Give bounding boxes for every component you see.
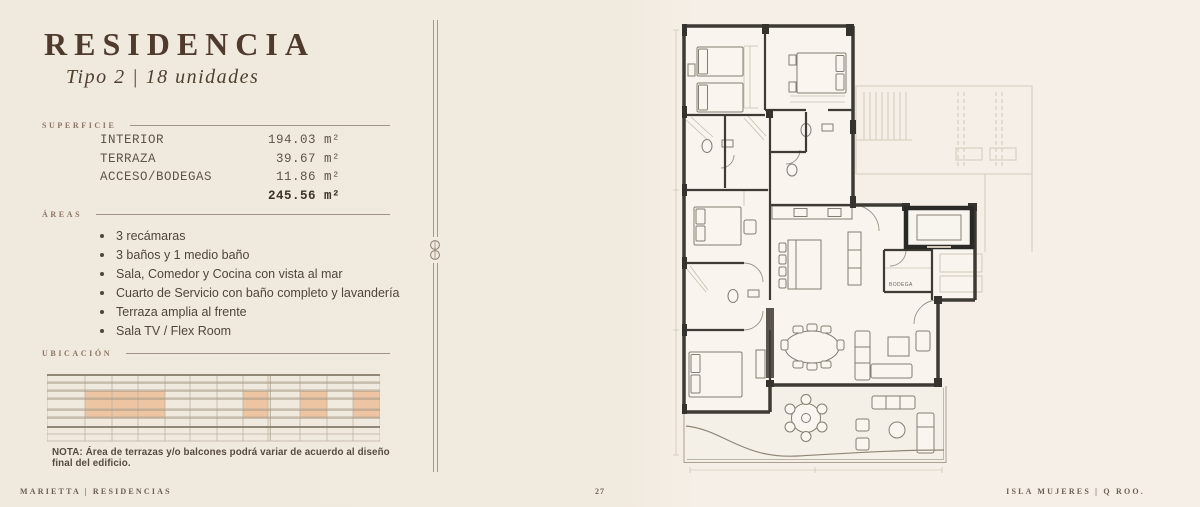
nota-text: NOTA: Área de terrazas y/o balcones podr… [52, 447, 392, 469]
areas-rule [96, 214, 390, 215]
superficie-label: SUPERFICIE [42, 121, 116, 130]
bodega-label: BODEGA [889, 282, 913, 288]
ubicacion-label: UBICACIÓN [42, 349, 112, 358]
section-ubicacion-header: UBICACIÓN [42, 349, 390, 358]
section-areas-header: ÁREAS [42, 210, 390, 219]
ubicacion-rule [126, 353, 390, 354]
row-name: ACCESO/BODEGAS [100, 170, 212, 184]
page-subtitle: Tipo 2 | 18 unidades [66, 66, 259, 89]
floor-plan: BODEGA [650, 10, 1080, 480]
superficie-total: 245.56 m² [100, 189, 340, 203]
bullet-icon [100, 329, 104, 333]
areas-label: ÁREAS [42, 210, 82, 219]
list-item-label: Sala TV / Flex Room [116, 324, 231, 338]
list-item-label: 3 baños y 1 medio baño [116, 248, 249, 262]
page-title: RESIDENCIA [44, 26, 315, 63]
ubicacion-grid [47, 372, 380, 447]
list-item-label: 3 recámaras [116, 229, 185, 243]
list-item: Cuarto de Servicio con baño completo y l… [100, 287, 420, 300]
list-item: 3 baños y 1 medio baño [100, 249, 420, 262]
bullet-icon [100, 272, 104, 276]
elevator-core [906, 208, 972, 247]
row-name: INTERIOR [100, 133, 164, 147]
row-value: 11.86 m² [276, 170, 340, 184]
brochure-page: RESIDENCIA Tipo 2 | 18 unidades SUPERFIC… [0, 0, 1200, 507]
list-item-label: Terraza amplia al frente [116, 305, 247, 319]
bullet-icon [100, 234, 104, 238]
superficie-rule [130, 125, 390, 126]
footer-left: MARIETTA | RESIDENCIAS [20, 487, 172, 496]
list-item-label: Cuarto de Servicio con baño completo y l… [116, 286, 400, 300]
footer-right: ISLA MUJERES | Q ROO. [1006, 487, 1145, 496]
divider-ornament-icon [426, 237, 444, 263]
bullet-icon [100, 291, 104, 295]
list-item: Sala TV / Flex Room [100, 325, 420, 338]
list-item: Sala, Comedor y Cocina con vista al mar [100, 268, 420, 281]
table-row: INTERIOR 194.03 m² [100, 133, 340, 147]
table-row: ACCESO/BODEGAS 11.86 m² [100, 170, 340, 184]
row-name: TERRAZA [100, 152, 156, 166]
bullet-icon [100, 253, 104, 257]
areas-list: 3 recámaras 3 baños y 1 medio baño Sala,… [100, 230, 420, 344]
table-row: TERRAZA 39.67 m² [100, 152, 340, 166]
list-item: 3 recámaras [100, 230, 420, 243]
bullet-icon [100, 310, 104, 314]
list-item-label: Sala, Comedor y Cocina con vista al mar [116, 267, 342, 281]
row-value: 194.03 m² [268, 133, 340, 147]
row-value: 39.67 m² [276, 152, 340, 166]
superficie-table: INTERIOR 194.03 m² TERRAZA 39.67 m² ACCE… [100, 133, 340, 203]
list-item: Terraza amplia al frente [100, 306, 420, 319]
section-superficie-header: SUPERFICIE [42, 121, 390, 130]
